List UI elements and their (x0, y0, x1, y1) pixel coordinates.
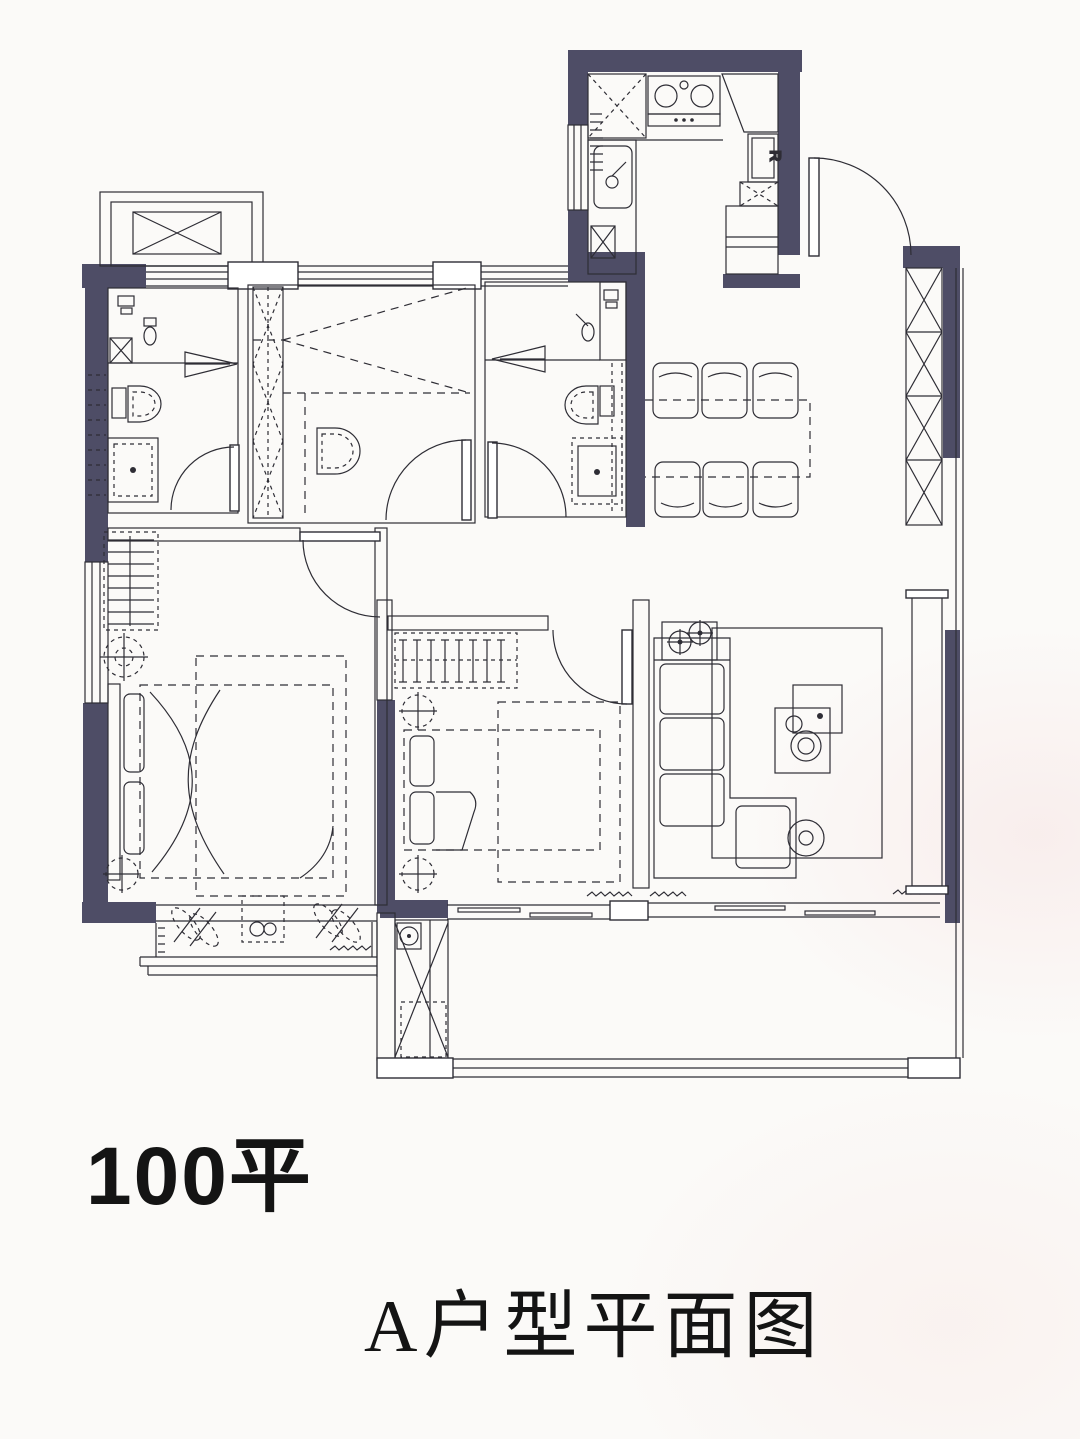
master-bed (108, 684, 333, 880)
window-column-ne (906, 268, 942, 525)
balcony-railing (453, 1059, 908, 1077)
bath2-toilet (565, 386, 614, 424)
bed2-sliding-window (447, 901, 648, 920)
bath2-slope-arrow (492, 346, 545, 372)
bathroom-left (88, 288, 239, 513)
wall-se-small (945, 878, 960, 923)
wall-kitchen-top (568, 50, 802, 72)
master-door (300, 532, 380, 617)
bed2-east-wall (633, 600, 649, 888)
second-bedroom (395, 630, 648, 920)
master-bedroom (100, 532, 380, 921)
bed2-rug (498, 702, 620, 882)
area-label: 100平 (86, 1136, 313, 1218)
refrigerator: R (748, 134, 783, 182)
dining-chair (655, 462, 700, 517)
ac-cabinet (662, 620, 717, 660)
kitchen-corner-cabinet (722, 74, 778, 132)
wall-kitchen-bottom-stub (723, 274, 800, 288)
wall-bath2-east (626, 262, 645, 527)
wall-right-upper (943, 268, 960, 458)
plant (167, 904, 223, 951)
closet-hanging-zone (253, 287, 470, 518)
master-top-wall (108, 528, 300, 541)
bed2-west-wall-upper (377, 600, 392, 700)
wall-left-upper (85, 264, 108, 562)
wall-ne-corner (903, 246, 960, 268)
fan-symbol (399, 855, 437, 893)
bed2 (404, 730, 600, 850)
wall-sw-corner (82, 902, 156, 923)
balcony-corner-block (377, 1058, 453, 1078)
entry-door-swing (814, 158, 911, 255)
bath1-shaft (110, 338, 132, 363)
kitchen: R (568, 74, 783, 274)
balcony-bottom (377, 913, 960, 1078)
hanger-rack (395, 633, 517, 688)
coffee-table (775, 708, 830, 773)
dining-table (645, 400, 810, 477)
closet-door (386, 440, 471, 520)
bath1-door (171, 445, 239, 511)
fan-symbol (100, 633, 148, 681)
floor-plan: R (0, 0, 1080, 1439)
kitchen-cabinet-right (726, 182, 778, 274)
floor-lamp (788, 820, 824, 856)
living-room (648, 590, 948, 917)
dining-chair (753, 462, 798, 517)
bath1-shower (108, 438, 158, 502)
dining-chair (653, 363, 698, 418)
refrigerator-label: R (766, 150, 783, 162)
wall-bed2-west-lower (377, 700, 395, 913)
dining-chair (703, 462, 748, 517)
balcony-left (140, 896, 377, 977)
bed2-door (553, 630, 632, 704)
bath2-basin (576, 282, 626, 360)
bath1-toilet (112, 386, 161, 422)
fan-symbol (103, 855, 141, 893)
living-rug (712, 628, 882, 858)
cooktop (648, 76, 720, 126)
drying-rack (104, 532, 158, 630)
hatch-squiggle (587, 892, 632, 896)
fan-symbol (399, 692, 437, 730)
wall-balcony-corner-left (380, 900, 448, 918)
ac-platform (100, 192, 263, 266)
entry-door (809, 158, 911, 256)
dining-area (645, 363, 810, 517)
closet-stool (317, 428, 360, 474)
bath2-door (488, 442, 566, 518)
window-left-wall (85, 562, 108, 703)
hatch-squiggle (650, 892, 686, 896)
bathroom-right (485, 282, 626, 518)
wall-left-lower (83, 703, 108, 905)
dining-chair (702, 363, 747, 418)
living-sliding-door (648, 903, 940, 917)
sink-faucet (606, 176, 618, 188)
planter-box (242, 896, 284, 942)
wardrobe-column (253, 287, 283, 518)
window-column-east (906, 590, 948, 894)
entry-door-leaf (809, 158, 819, 256)
plant (309, 900, 365, 947)
bath1-slope-arrow (185, 352, 237, 377)
laundry-cabinet (395, 920, 448, 1060)
bed2-top-wall (388, 616, 548, 630)
side-table (793, 685, 842, 733)
wall-kitchen-left-upper (568, 50, 588, 125)
plan-title: A户型平面图 (364, 1290, 823, 1364)
walls (82, 50, 960, 923)
floor-plan-page: R (0, 0, 1080, 1439)
hatch-squiggle (330, 946, 371, 950)
walk-in-closet (248, 285, 475, 523)
kitchen-window-left (568, 125, 588, 210)
balcony-corner-block (908, 1058, 960, 1078)
bath2-shower (572, 438, 622, 504)
dining-chair (753, 363, 798, 418)
